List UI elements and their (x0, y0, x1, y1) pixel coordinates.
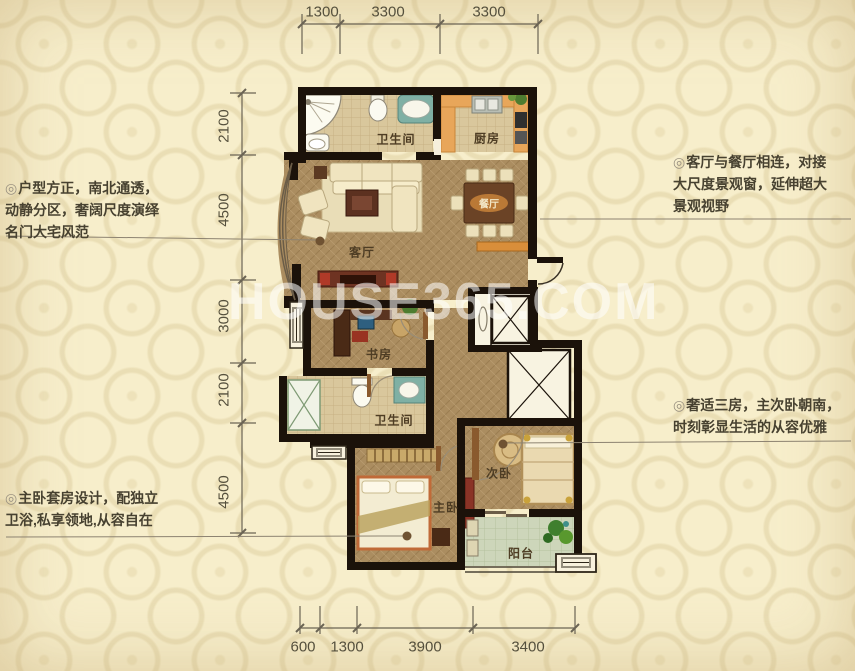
sofa (330, 163, 422, 182)
bullet-icon: ◎ (673, 154, 685, 170)
bullet-icon: ◎ (5, 180, 17, 196)
room-label-bath1: 卫生间 (376, 131, 415, 148)
entry-door-leaf (537, 257, 563, 263)
room-label-balcony: 阳台 (508, 545, 534, 562)
master-door-leaf (436, 446, 441, 471)
wardrobe-icon (367, 449, 437, 462)
pillow (396, 481, 424, 493)
balcony-rail (465, 567, 556, 572)
callout-left-top: ◎户型方正，南北通透， 动静分区，奢阔尺度演绎 名门大宅风范 (5, 177, 159, 243)
nightstand (432, 528, 450, 546)
room-label-dining: 餐厅 (479, 196, 499, 211)
kitchen-door-gap (434, 139, 441, 155)
dim-bottom-1: 1300 (330, 639, 363, 656)
bath2-door-leaf (367, 374, 371, 397)
balcony-fixture (467, 520, 478, 536)
dim-top-1: 3300 (371, 4, 404, 21)
callout-left-bottom: ◎主卧套房设计，配独立 卫浴,私享领地,从容自在 (5, 487, 158, 531)
chaise (392, 186, 417, 232)
dim-top-0: 1300 (305, 4, 338, 21)
dim-left-4: 4500 (216, 475, 233, 508)
callout-right-top: ◎客厅与餐厅相连，对接 大尺度景观窗，延伸超大 景观视野 (673, 151, 827, 217)
dim-left-0: 2100 (216, 109, 233, 142)
room-label-kitchen: 厨房 (474, 130, 500, 147)
books (352, 331, 368, 342)
dim-left-2: 3000 (216, 299, 233, 332)
floorplan-page: HOUSE365.COM 卫生间 厨房 客厅 餐厅 书房 卫生间 次卧 主卧 阳… (0, 0, 855, 671)
dim-bottom-3: 3400 (511, 639, 544, 656)
dim-bottom-2: 3900 (408, 639, 441, 656)
dim-top-2: 3300 (472, 4, 505, 21)
window-icon (312, 446, 346, 459)
side-table (314, 166, 327, 179)
room-label-bedroom2: 次卧 (486, 465, 512, 482)
room-label-bath2: 卫生间 (374, 412, 413, 429)
slider-door (485, 511, 506, 514)
room-label-study: 书房 (366, 346, 392, 363)
dining-chair (466, 169, 479, 181)
stove-icon (515, 112, 527, 128)
dim-left-1: 4500 (216, 193, 233, 226)
floor-plan-drawing (0, 0, 855, 671)
room-label-master: 主卧 (433, 499, 459, 516)
dim-left-3: 2100 (216, 373, 233, 406)
dim-bottom-0: 600 (290, 639, 315, 656)
console-table (477, 242, 533, 251)
bedroom2-door-leaf (472, 428, 479, 480)
callout-right-bottom: ◎奢适三房，主次卧朝南， 时刻彰显生活的从容优雅 (673, 394, 840, 438)
pillow (362, 481, 390, 493)
bullet-icon: ◎ (673, 397, 685, 413)
watermark: HOUSE365.COM (228, 272, 659, 332)
window-icon (556, 554, 596, 572)
room-label-living: 客厅 (349, 244, 375, 261)
bullet-icon: ◎ (5, 490, 17, 506)
